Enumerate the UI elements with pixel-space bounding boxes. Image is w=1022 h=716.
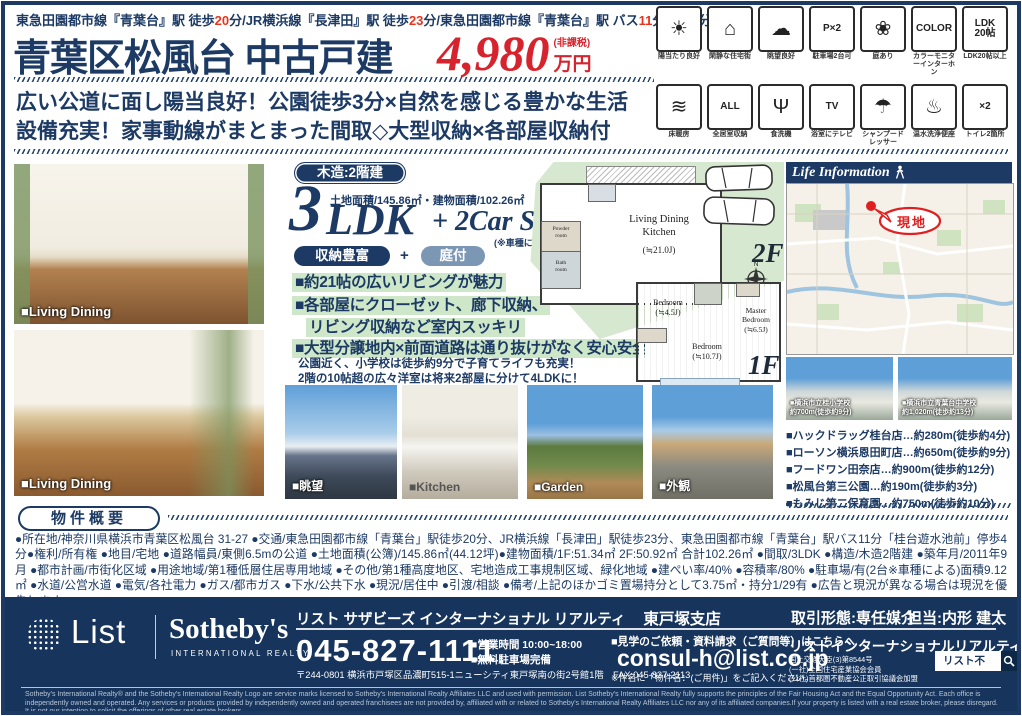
price-block: 4,980 (非課税) 万円: [437, 28, 592, 78]
life-info-header: Life Information: [786, 162, 1012, 183]
feature-ldk20: LDK 20帖LDK20帖以上: [962, 6, 1008, 77]
feature-bath-tv: TV浴室にテレビ: [809, 84, 855, 147]
bullet-3: リビング収納など室内スッキリ: [306, 315, 525, 337]
footer-hours: ■営業時間 10:00~18:00: [471, 637, 582, 652]
photo-caption: ■Living Dining: [21, 304, 111, 319]
site-marker-label: 現地: [889, 212, 935, 231]
room-bedroom1: Bedroom (≒4.5J): [640, 298, 696, 318]
photo-caption: ■外観: [659, 477, 690, 494]
footer-parking: ■無料駐車場完備: [471, 652, 551, 667]
washlet-icon: ♨: [911, 84, 957, 130]
two-toilets-icon: ×2: [962, 84, 1008, 130]
feature-icons-row2: ≋床暖房 ALL全居室収納 Ψ食洗機 TV浴室にテレビ ☂シャンプードレッサー …: [656, 84, 1008, 147]
footer-rule: [296, 628, 996, 630]
bullet-2: ■各部屋にクローゼット、廊下収納、: [292, 293, 550, 315]
feature-quiet-area: ⌂閑静な住宅街: [707, 6, 753, 77]
divider-hatch-2: [14, 149, 1008, 154]
footer-licenses: 国土交通大臣(3)第8544号 (一社)全国住宅産業協会会員 (公社)首都圏不動…: [789, 655, 918, 684]
ldk-20jo-icon: LDK 20帖: [962, 6, 1008, 52]
photo-caption: ■Garden: [534, 480, 583, 494]
life-info-title: Life Information: [792, 165, 890, 181]
feature-dishwasher: Ψ食洗機: [758, 84, 804, 147]
divider-hatch-1: [14, 77, 654, 82]
layout-ldk: LDK: [326, 198, 414, 242]
facility-item: ■松風台第三公園…約190m(徒歩約3分): [786, 479, 1010, 496]
facility-item: ■ハックドラッグ桂台店…約280m(徒歩約4分): [786, 428, 1010, 445]
footer-agent: 担当:内形 建太: [907, 607, 1006, 628]
magnifier-icon: [1003, 655, 1015, 667]
search-box[interactable]: リスト不動産: [935, 651, 1017, 671]
room-master-bedroom: Master Bedroom (≒6.5J): [734, 306, 778, 334]
footer-license-1: 国土交通大臣(3)第8544号: [789, 655, 918, 665]
facility-item: ■ローソン横浜恩田町店…約650m(徒歩約9分): [786, 445, 1010, 462]
divider-hatch-overview: [168, 515, 1008, 520]
school2-caption-line2: 約1,020m(徒歩約13分): [902, 408, 976, 417]
garden-icon: ❀: [860, 6, 906, 52]
photo-living-dining-1: ■Living Dining: [14, 164, 264, 324]
price-value: 4,980: [437, 28, 550, 78]
color-monitor-icon: COLOR: [911, 6, 957, 52]
footer-license-3: (公社)首都圏不動産公正取引協議会加盟: [789, 674, 918, 684]
logo-divider: [155, 615, 156, 659]
footer-branch: 東戸塚支店: [643, 611, 721, 628]
footer-phone: 045-827-1111: [296, 633, 496, 669]
photo-caption: ■眺望: [292, 477, 323, 494]
room-stairs: [694, 283, 722, 305]
car-space-icons: [700, 164, 780, 228]
photo-elementary-school: ■横浜市立桂小学校 約700m(徒歩約9分): [786, 357, 893, 420]
school1-caption-line1: ■横浜市立桂小学校: [790, 399, 851, 408]
room-bedroom2: Bedroom (≒10.7J): [674, 342, 740, 362]
location-map: 現地: [786, 183, 1014, 355]
photo-caption: ■Kitchen: [409, 480, 460, 494]
room-powder: Powder room: [544, 226, 578, 240]
price-tax-note: (非課税): [554, 34, 592, 49]
feature-color-monitor: COLORカラーモニターインターホン: [911, 6, 957, 77]
photo-junior-high-school: ■横浜市立青葉台中学校 約1,020m(徒歩約13分): [898, 357, 1012, 420]
footer-disclaimer: Sotheby's International Realty® and the …: [25, 691, 1000, 716]
floor-heating-icon: ≋: [656, 84, 702, 130]
bullet-1: ■約21帖の広いリビングが魅力: [292, 270, 506, 292]
note-2: 2階の10帖超の広々洋室は将来2部屋に分けて4LDKに！: [298, 370, 584, 386]
school2-caption-line1: ■横浜市立青葉台中学校: [902, 399, 976, 408]
divider-hatch-right: [786, 503, 1012, 508]
feature-icons-row1: ☀陽当たり良好 ⌂閑静な住宅街 ☁眺望良好 P×2駐車場2台可 ❀庭あり COL…: [656, 6, 1008, 77]
footer-disclaimer-rule: [21, 687, 1001, 688]
bath-tv-icon: TV: [809, 84, 855, 130]
catch-copy-line1: 広い公道に面し陽当良好！公園徒歩3分×自然を感じる豊かな生活: [16, 86, 628, 116]
feature-sunny: ☀陽当たり良好: [656, 6, 702, 77]
layout-number: 3: [289, 176, 322, 242]
room-bath: Bath room: [544, 260, 578, 274]
photo-garden: ■Garden: [527, 385, 643, 499]
feature-parking: P×2駐車場2台可: [809, 6, 855, 77]
feature-floor-heating: ≋床暖房: [656, 84, 702, 147]
footer-license-2: (一社)全国住宅産業協会会員: [789, 665, 918, 675]
dishwasher-icon: Ψ: [758, 84, 804, 130]
room-closet-1f-b: [736, 283, 760, 297]
storage-badge: 収納豊富: [294, 246, 390, 266]
photo-kitchen: ■Kitchen: [402, 385, 518, 499]
photo-caption: ■Living Dining: [21, 476, 111, 491]
all-rooms-storage-icon: ALL: [707, 84, 753, 130]
feature-garden: ❀庭あり: [860, 6, 906, 77]
house-tree-icon: ⌂: [707, 6, 753, 52]
footer: List Sotheby's INTERNATIONAL REALTY リスト …: [5, 597, 1017, 711]
logo-sothebys: Sotheby's: [169, 613, 288, 646]
search-label[interactable]: リスト不動産: [935, 651, 1001, 671]
feature-two-toilets: ×2トイレ2箇所: [962, 84, 1008, 147]
view-icon: ☁: [758, 6, 804, 52]
page-title: 青葉区松風台 中古戸建: [13, 27, 393, 82]
room-closet-1f-a: [637, 328, 667, 343]
footer-deal-type: 取引形態:専任媒介: [791, 607, 916, 628]
logo-sub: INTERNATIONAL REALTY: [171, 649, 310, 658]
price-unit: 万円: [554, 49, 592, 76]
list-logo-sphere-icon: [27, 618, 61, 652]
label-1f: 1F: [748, 350, 780, 381]
label-2f: 2F: [752, 238, 784, 269]
parking-2cars-icon: P×2: [809, 6, 855, 52]
room-ldk: Living Dining Kitchen: [604, 213, 714, 239]
real-estate-flyer: 東急田園都市線『青葉台』駅 徒歩20分/JR横浜線『長津田』駅 徒歩23分/東急…: [0, 0, 1022, 716]
note-1: 公園近く、小学校は徒歩約9分で子育てライフも充実！: [298, 355, 580, 371]
shampoo-dresser-icon: ☂: [860, 84, 906, 130]
search-button[interactable]: [1001, 651, 1017, 671]
feature-view: ☁眺望良好: [758, 6, 804, 77]
school1-caption-line2: 約700m(徒歩約9分): [790, 408, 851, 417]
feature-washlet: ♨温水洗浄便座: [911, 84, 957, 147]
garden-badge: 庭付: [421, 246, 485, 266]
facility-item: ■フードワン田奈店…約900m(徒歩約12分): [786, 462, 1010, 479]
photo-view: ■眺望: [285, 385, 397, 499]
feature-shampoo-dresser: ☂シャンプードレッサー: [860, 84, 906, 147]
footer-company-line: リスト サザビーズ インターナショナル リアルティ 東戸塚支店: [296, 607, 721, 629]
overview-badge: 物件概要: [18, 506, 160, 531]
footer-email-note: ※件名に「物件名：(ご用件)」をご記入ください。: [611, 671, 814, 684]
photo-living-dining-2: ■Living Dining: [14, 330, 264, 496]
room-closet-2f: [588, 184, 616, 202]
facility-list: ■ハックドラッグ桂台店…約280m(徒歩約4分) ■ローソン横浜恩田町店…約65…: [786, 428, 1010, 513]
sun-icon: ☀: [656, 6, 702, 52]
badge-join: +: [400, 247, 409, 264]
logo-list: List: [71, 613, 126, 651]
catch-copy-line2: 設備充実！家事動線がまとまった間取◇大型収納×各部屋収納付: [16, 115, 611, 145]
photo-exterior: ■外観: [652, 385, 773, 499]
walking-person-icon: [894, 165, 906, 180]
feature-all-storage: ALL全居室収納: [707, 84, 753, 147]
room-ldk-size: (≒21.0J): [604, 245, 714, 256]
